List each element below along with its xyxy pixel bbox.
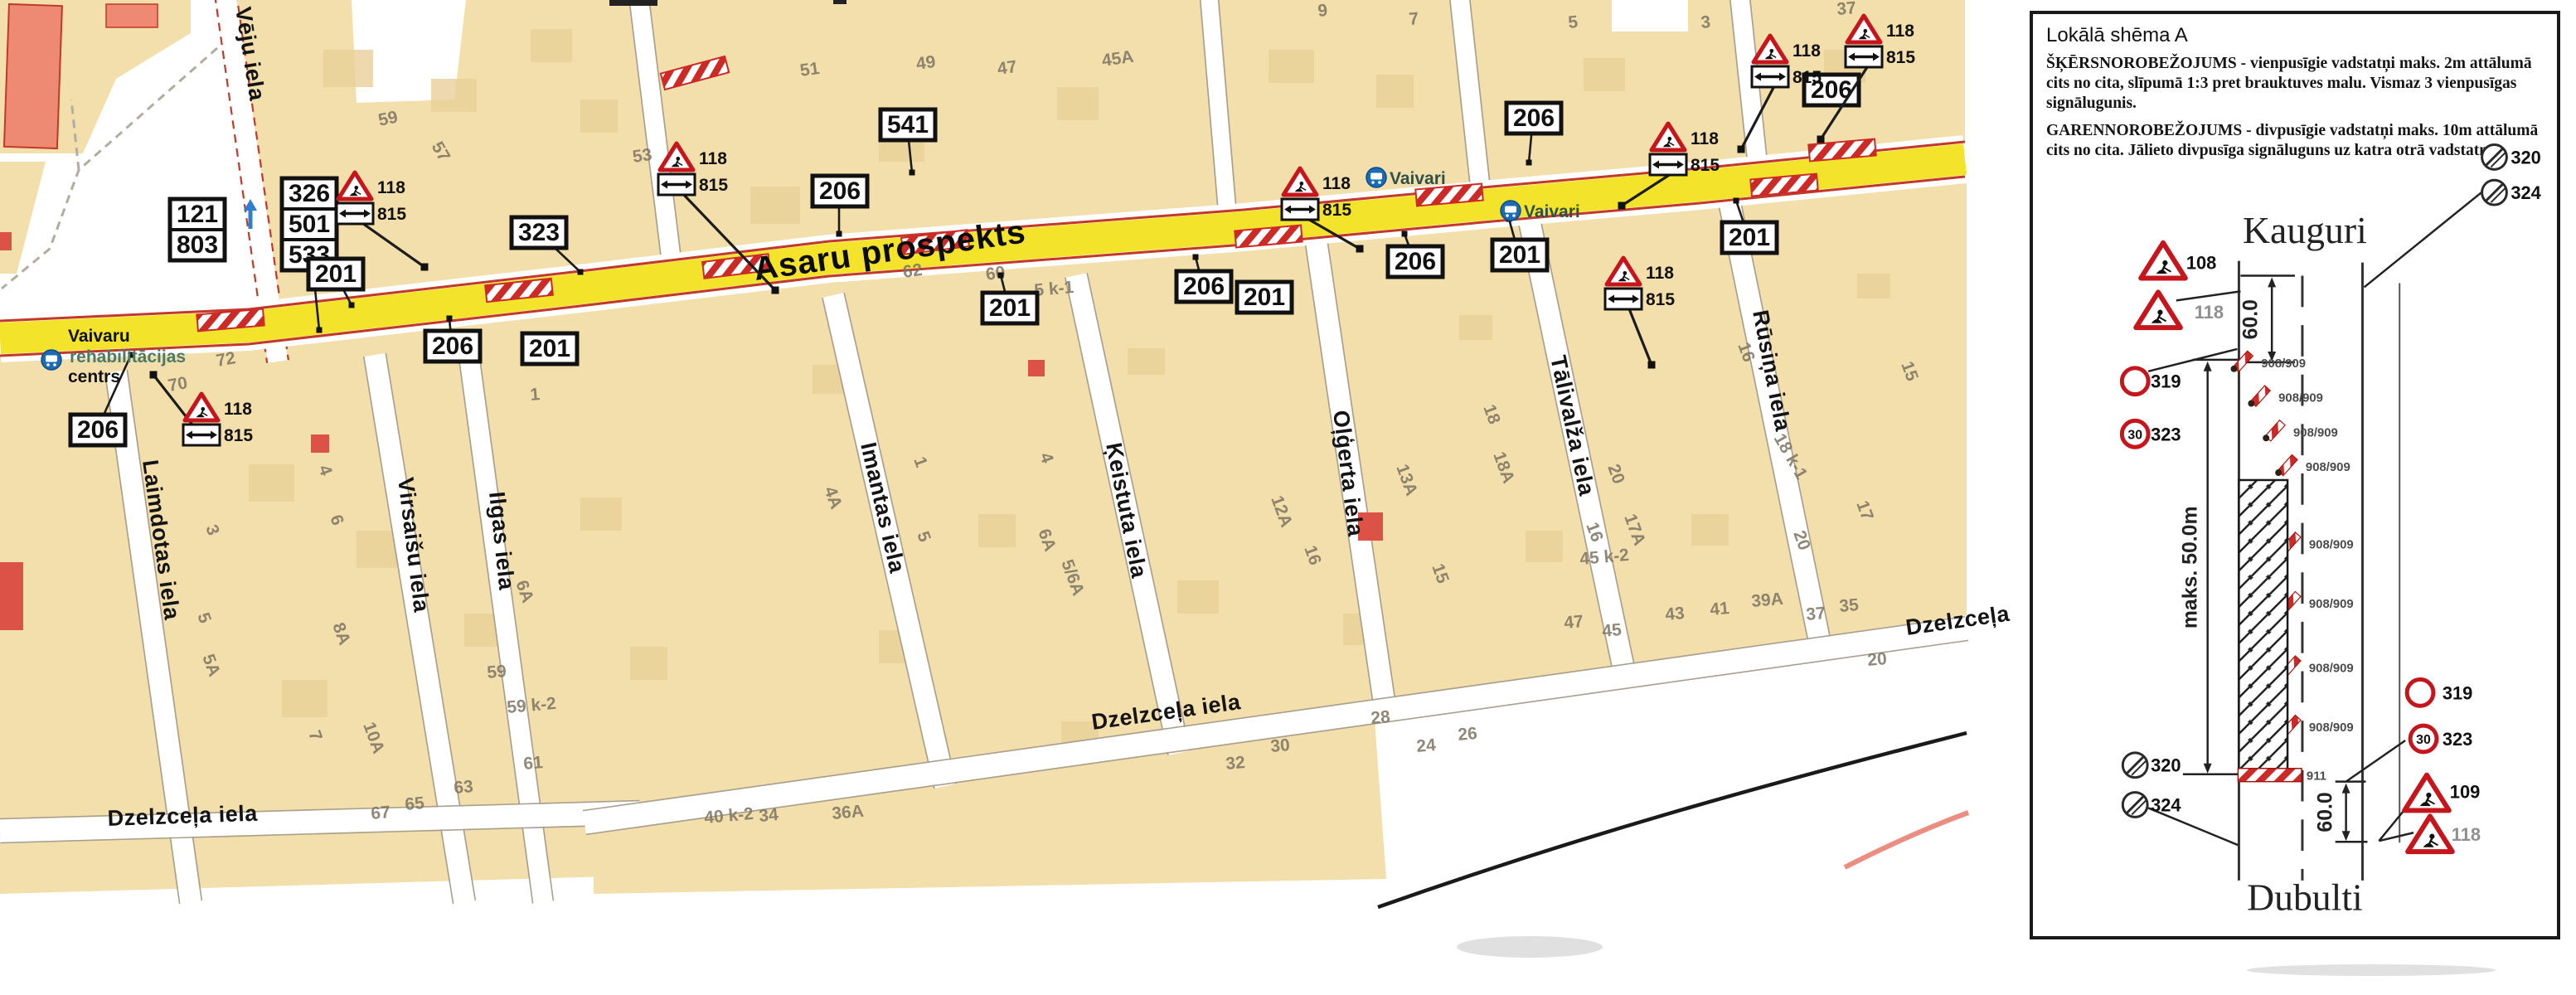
plate-number: 815 [1691,156,1720,175]
legend-term-garennorobezojums: GARENNOROBEŽOJUMS [2046,122,2242,139]
speed-limit-30-icon: 30 [2410,726,2437,752]
legend-leader-line [2379,804,2409,841]
building-red [311,434,329,453]
building [431,79,477,112]
street-label: Dzelzceļa iela [107,801,259,831]
sign-box-number: 206 [1513,104,1555,132]
guide-post-label: 908/909 [2261,357,2306,371]
sign-box-number: 206 [77,416,119,444]
building [630,647,667,680]
legend-sign-number: 319 [2151,371,2181,392]
legend-sign-number: 324 [2511,182,2541,203]
scan-artifact [833,0,847,4]
guide-post-icon [2278,532,2301,554]
house-number: 7 [1408,9,1419,29]
house-number: 30 [1269,735,1290,756]
sign-box-number: 326 [289,180,330,207]
two-way-arrow-plate-icon [658,174,695,195]
warning-sign-number: 118 [1886,22,1914,41]
sign-box-number: 206 [1183,273,1225,300]
legend-sign-118: 118 [2408,816,2481,852]
house-number: 49 [914,52,936,74]
legend-work-area [2239,480,2287,771]
house-number: 5 [1567,12,1579,32]
warning-sign-number: 118 [1793,41,1821,61]
sign-box-number: 206 [819,177,861,205]
sign-box-number: 803 [177,231,218,259]
legend-leader-line [2364,190,2484,287]
guide-post-label: 908/909 [2309,598,2354,611]
legend-title: Lokālā shēma A [2046,24,2557,47]
legend-leader-line [2148,808,2238,845]
house-number: 37 [1805,604,1826,624]
building [106,4,158,27]
legend-sign-320: 320 [2122,753,2181,778]
legend-paragraph-skersnorobezojums: ŠĶĒRSNOROBEŽOJUMS - vienpusīgie vadstatņ… [2046,54,2542,113]
two-way-arrow-plate-icon [1650,154,1686,175]
roadworks-triangle-icon [2408,816,2452,852]
house-number: 41 [1709,599,1730,619]
dimension-label: 60.0 [2315,792,2337,832]
house-number: 59 [486,662,507,682]
building [249,464,294,502]
sign-box-number: 201 [529,335,570,362]
warning-sign-number: 118 [1322,174,1351,193]
guide-post-label: 908/909 [2309,538,2354,551]
plate-number: 815 [1793,68,1822,87]
legend-sign-number: 109 [2450,782,2480,803]
svg-text:30: 30 [2127,428,2142,442]
house-number: 37 [1836,0,1856,19]
bus-stop-label: Vaivaru [68,327,130,346]
building [1128,348,1165,375]
building [1057,87,1099,120]
two-way-arrow-plate-icon [1846,46,1882,67]
building [580,99,618,133]
legend-sign-319: 319 [2407,679,2472,706]
bus-stop-icon [1501,201,1521,221]
end-of-restriction-icon [2122,793,2147,818]
bus-stop-label: centrs [68,367,120,386]
legend-sign-number: 319 [2443,682,2472,703]
prohibition-ring-icon [2407,679,2433,706]
legend-sign-109: 109 [2404,775,2480,811]
scan-smudge [1457,936,1603,958]
roadworks-triangle-icon [2136,292,2181,328]
prohibition-ring-icon [2122,368,2148,395]
plate-number: 815 [224,426,253,445]
guide-post-label: 908/909 [2306,461,2350,474]
legend-term-skersnorobezojums: ŠĶĒRSNOROBEŽOJUMS [2046,55,2237,72]
plate-number: 815 [699,176,728,195]
legend-sign-319: 319 [2122,368,2181,395]
house-number: 5 k-1 [1033,278,1075,300]
house-number: 9 [1317,1,1328,21]
legend-leader-line [2346,740,2406,782]
warning-sign-number: 118 [1646,264,1674,283]
house-number: 3 [1700,12,1711,32]
warning-sign-number: 118 [1691,129,1719,148]
house-number: 59 [376,108,400,130]
building-large [4,4,62,148]
dimension-label: maks. 50.0m [2180,506,2202,629]
roadworks-triangle-icon [2141,243,2185,279]
bus-stop-icon [41,350,61,370]
sign-box-number: 201 [1244,284,1285,311]
end-of-restriction-icon [2122,753,2147,778]
bus-stop-label: Vaivari [1524,202,1580,221]
legend-leader-line [2176,291,2241,300]
house-number: 47 [1563,612,1584,633]
plate-number: 815 [377,205,406,224]
guide-post-label: 908/909 [2309,662,2354,675]
house-number: 43 [1664,604,1685,624]
building [282,680,327,717]
house-number: 24 [1415,735,1437,756]
house-number: 32 [1225,753,1245,774]
bus-stop-label: rehabilitācijas [70,347,186,366]
building [1459,315,1492,340]
sign-box-number: 501 [289,211,330,238]
house-number: 65 [404,794,425,814]
house-number: 1 [529,385,541,405]
house-number: 34 [758,805,779,826]
railway-line-secondary [1845,813,1968,867]
bus-stop: Vaivari [1366,167,1446,188]
building [750,187,800,224]
guide-post-label: 908/909 [2309,721,2354,735]
legend-sign-number: 323 [2151,424,2181,444]
speed-limit-30-icon: 30 [2122,420,2148,447]
sign-box-number: 323 [518,219,560,246]
two-way-arrow-plate-icon [337,203,373,224]
guide-post-label: 908/909 [2293,426,2338,439]
legend-paragraph-garennorobezojums: GARENNOROBEŽOJUMS - divpusīgie vadstatņi… [2046,121,2542,161]
sign-box-number: 201 [989,294,1031,322]
legend-sign-108: 108 [2141,243,2216,279]
legend-sign-323: 30323 [2122,420,2181,447]
legend-sign-324: 324 [2482,180,2542,205]
house-number: 51 [798,59,821,80]
sign-box: 121803 [170,199,225,260]
legend-leader-line [2379,832,2413,841]
legend-sign-323: 30323 [2410,726,2472,752]
house-number: 61 [522,753,544,774]
building [1269,50,1314,83]
sign-box-number: 201 [1729,224,1770,251]
building [1857,274,1890,298]
house-number: 36A [831,802,864,823]
building [1376,75,1414,108]
roadworks-triangle-icon [2404,775,2449,811]
legend-panel: Lokālā shēma A ŠĶĒRSNOROBEŽOJUMS - vienp… [2030,11,2560,939]
building [323,50,373,87]
house-number: 67 [370,803,391,823]
sign-box-number: 201 [1499,241,1540,269]
legend-sign-number: 108 [2186,253,2216,274]
building [531,29,572,62]
guide-post-icon [2275,454,2297,476]
building [357,531,398,568]
svg-text:30: 30 [2416,733,2431,747]
building-red [0,562,23,630]
legend-diagram-layers: 60.0maks. 50.0m60.0908/909908/909908/909… [2122,145,2541,919]
two-way-arrow-plate-icon [1752,66,1788,87]
dimension-label: 60.0 [2239,299,2262,339]
bus-stop-label: Vaivari [1390,169,1446,188]
plate-number: 815 [1322,201,1351,220]
railway-line [1378,733,1967,907]
legend-sign-number: 118 [2195,302,2224,323]
legend-sign-324: 324 [2122,793,2181,818]
sign-box: 201 [1237,282,1292,313]
building [1691,514,1729,546]
house-number: 20 [1866,649,1887,670]
legend-leader-line [2148,349,2237,371]
plate-number: 815 [1646,290,1675,309]
sign-box-number: 121 [177,201,218,228]
building [1526,531,1563,562]
legend-sign-number: 323 [2443,729,2472,750]
guide-post-icon [2278,591,2301,613]
bus-stop-icon [1366,167,1386,187]
building-red [0,232,12,250]
house-number: 35 [1838,595,1860,616]
guide-post-icon [2248,386,2270,407]
plate-number: 815 [1886,48,1915,67]
house-number: 26 [1457,724,1477,745]
house-number: 70 [167,373,189,396]
guide-post-icon [2278,656,2301,677]
two-way-arrow-plate-icon [1282,199,1318,220]
house-number: 39A [1750,590,1783,611]
house-number: 53 [631,145,652,167]
house-number: 63 [453,777,473,798]
house-number: 28 [1370,707,1391,728]
warning-sign-number: 118 [699,149,727,168]
scan-artifact [609,0,657,6]
barrier-label: 911 [2307,770,2326,784]
building [1584,58,1625,91]
place-label-kauguri: Kauguri [2243,209,2367,251]
end-of-restriction-icon [2482,180,2507,205]
legend-sign-number: 320 [2151,755,2181,776]
scan-smudge [2247,964,2496,976]
legend-sign-number: 118 [2452,824,2481,845]
two-way-arrow-plate-icon [183,425,220,445]
barrier-icon [2238,769,2302,782]
house-number: 45 [1601,620,1623,641]
house-number: 47 [996,57,1017,79]
warning-sign-number: 118 [377,178,405,197]
guide-post-icon [2230,351,2253,372]
open-area [1612,0,1688,32]
guide-post-label: 908/909 [2278,392,2323,405]
sign-box-number: 541 [887,111,929,138]
sign-box-number: 206 [1395,248,1436,275]
building [978,514,1016,547]
bus-stop: Vaivari [1501,201,1580,221]
guide-post-icon [2278,715,2301,736]
building-red [1028,360,1045,376]
sign-box-number: 201 [315,260,357,288]
house-number: 72 [215,348,237,371]
legend-sign-118: 118 [2136,292,2224,328]
house-number: 62 [901,260,923,282]
guide-post-icon [2263,420,2285,442]
sign-box-number: 206 [432,332,473,360]
sign-box: 201 [522,333,577,364]
two-way-arrow-plate-icon [1605,289,1642,309]
document-page: Vēju ielaLaimdotas ielaVirsaišu ielaIlga… [0,0,2576,995]
legend-sign-number: 324 [2151,794,2181,815]
building [1177,580,1219,614]
building [580,498,622,531]
warning-sign-number: 118 [224,400,252,419]
place-label-dubulti: Dubulti [2247,876,2363,919]
